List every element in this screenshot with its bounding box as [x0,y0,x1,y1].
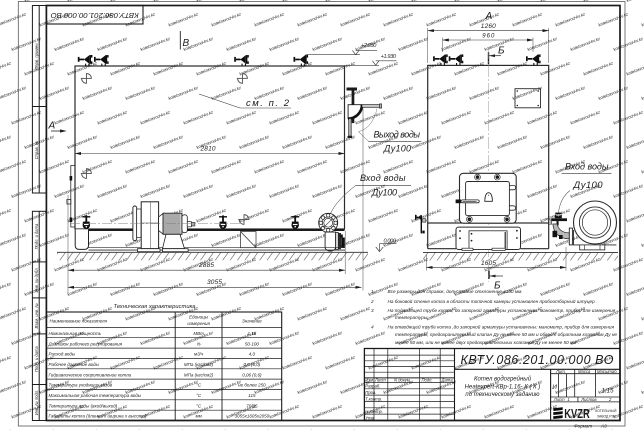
svg-text:2: 2 [608,397,612,402]
svg-text:kotelzavod-kv.kz: kotelzavod-kv.kz [398,109,430,125]
svg-text:температуры, предохранительный: температуры, предохранительный клапан Ду… [395,331,617,337]
svg-text:kotelzavod-kv.kz: kotelzavod-kv.kz [641,85,644,101]
svg-text:kotelzavod-kv.kz: kotelzavod-kv.kz [282,134,314,150]
svg-text:kotelzavod-kv.kz: kotelzavod-kv.kz [540,281,572,297]
svg-text:kotelzavod-kv.kz: kotelzavod-kv.kz [383,158,415,174]
svg-text:kotelzavod-kv.kz: kotelzavod-kv.kz [269,403,301,419]
svg-text:2: 2 [370,299,374,304]
svg-text:kotelzavod-kv.kz: kotelzavod-kv.kz [312,109,344,125]
svg-text:kotelzavod-kv.kz: kotelzavod-kv.kz [54,36,86,52]
svg-text:Подп. и дата: Подп. и дата [34,223,39,249]
svg-text:Техническая характеристика: Техническая характеристика [114,304,196,310]
svg-text:см. п. 2: см. п. 2 [246,98,290,109]
svg-text:Н.контр.: Н.контр. [365,409,383,414]
svg-text:4,0: 4,0 [249,352,256,357]
svg-text:Пров.: Пров. [365,390,376,395]
svg-text:kotelzavod-kv.kz: kotelzavod-kv.kz [226,109,258,125]
svg-text:kotelzavod-kv.kz: kotelzavod-kv.kz [512,11,544,27]
svg-text:kotelzavod-kv.kz: kotelzavod-kv.kz [355,330,387,346]
svg-text:1,16: 1,16 [248,331,257,336]
svg-text:kotelzavod-kv.kz: kotelzavod-kv.kz [153,134,185,150]
svg-text:kotelzavod-kv.kz: kotelzavod-kv.kz [97,36,129,52]
svg-text:kotelzavod-kv.kz: kotelzavod-kv.kz [0,0,13,3]
svg-text:kotelzavod-kv.kz: kotelzavod-kv.kz [0,85,28,101]
svg-text:kotelzavod-kv.kz: kotelzavod-kv.kz [67,281,99,297]
svg-text:kotelzavod-kv.kz: kotelzavod-kv.kz [583,281,615,297]
svg-text:kotelzavod-kv.kz: kotelzavod-kv.kz [110,281,142,297]
svg-text:kotelzavod-kv.kz: kotelzavod-kv.kz [641,305,644,321]
svg-text:Лист: Лист [374,377,386,382]
svg-text:kotelzavod-kv.kz: kotelzavod-kv.kz [613,36,644,52]
svg-text:kotelzavod-kv.kz: kotelzavod-kv.kz [67,134,99,150]
svg-text:2810: 2810 [200,146,216,153]
svg-text:А: А [48,121,56,132]
svg-text:Номинальная мощность: Номинальная мощность [49,331,102,336]
svg-text:Перв. примен.: Перв. примен. [34,42,39,69]
svg-text:kotelzavod-kv.kz: kotelzavod-kv.kz [441,403,473,419]
svg-text:kotelzavod-kv.kz: kotelzavod-kv.kz [54,109,86,125]
svg-text:kotelzavod-kv.kz: kotelzavod-kv.kz [613,183,644,199]
svg-text:kotelzavod-kv.kz: kotelzavod-kv.kz [297,158,329,174]
svg-text:kotelzavod-kv.kz: kotelzavod-kv.kz [626,207,644,223]
svg-text:kotelzavod-kv.kz: kotelzavod-kv.kz [626,354,644,370]
svg-text:kotelzavod-kv.kz: kotelzavod-kv.kz [183,109,215,125]
svg-text:Диапазон рабочего регулировани: Диапазон рабочего регулирования [48,341,123,346]
svg-text:Единицы: Единицы [189,315,209,320]
svg-text:KVZR: KVZR [564,406,590,421]
svg-text:А3: А3 [600,424,607,429]
svg-text:Вход воды: Вход воды [565,162,609,172]
svg-text:kotelzavod-kv.kz: kotelzavod-kv.kz [527,109,559,125]
svg-text:Расход воды: Расход воды [49,352,76,357]
svg-text:kotelzavod-kv.kz: kotelzavod-kv.kz [125,158,157,174]
svg-text:И: И [552,384,557,391]
svg-text:kotelzavod-kv.kz: kotelzavod-kv.kz [383,11,415,27]
svg-text:kotelzavod-kv.kz: kotelzavod-kv.kz [497,134,529,150]
svg-text:4: 4 [371,325,374,330]
svg-text:Наименование показателя: Наименование показателя [50,319,108,324]
svg-text:kotelzavod-kv.kz: kotelzavod-kv.kz [183,183,215,199]
svg-text:kotelzavod-kv.kz: kotelzavod-kv.kz [297,11,329,27]
svg-text:kotelzavod-kv.kz: kotelzavod-kv.kz [0,207,13,223]
svg-text:менее 50 мм, или не менее дву: менее 50 мм, или не менее двух предохран… [395,340,579,345]
svg-text:На отводящей трубе котла ,до з: На отводящей трубе котла ,до запорной ар… [388,324,615,330]
svg-text:+1.930: +1.930 [381,54,397,60]
svg-text:Ду100: Ду100 [371,187,397,197]
svg-text:kotelzavod-kv.kz: kotelzavod-kv.kz [140,36,172,52]
svg-text:960: 960 [482,33,495,39]
svg-text:2885: 2885 [198,262,214,269]
svg-text:kotelzavod-kv.kz: kotelzavod-kv.kz [469,158,501,174]
svg-text:kotelzavod-kv.kz: kotelzavod-kv.kz [325,281,357,297]
svg-text:Разраб.: Разраб. [365,384,380,389]
svg-text:°С: °С [196,383,202,388]
svg-text:kotelzavod-kv.kz: kotelzavod-kv.kz [97,183,129,199]
svg-text:kotelzavod-kv.kz: kotelzavod-kv.kz [312,183,344,199]
svg-text:%: % [197,341,201,346]
svg-text:kotelzavod-kv.kz: kotelzavod-kv.kz [54,183,86,199]
svg-text:1: 1 [371,289,374,294]
svg-text:kotelzavod-kv.kz: kotelzavod-kv.kz [282,207,314,223]
svg-text:kotelzavod-kv.kz: kotelzavod-kv.kz [626,0,644,3]
svg-text:kotelzavod-kv.kz: kotelzavod-kv.kz [325,354,357,370]
svg-text:kotelzavod-kv.kz: kotelzavod-kv.kz [641,232,644,248]
svg-text:kotelzavod-kv.kz: kotelzavod-kv.kz [211,11,243,27]
svg-text:kotelzavod-kv.kz: kotelzavod-kv.kz [555,11,587,27]
svg-text:мм: мм [196,414,202,419]
svg-text:КВТУ.086.201.00.000 ВО: КВТУ.086.201.00.000 ВО [461,353,614,367]
svg-text:Ду100: Ду100 [383,144,411,154]
svg-text:kotelzavod-kv.kz: kotelzavod-kv.kz [426,158,458,174]
svg-text:kotelzavod-kv.kz: kotelzavod-kv.kz [153,281,185,297]
svg-text:Габариты котла (длинна х ширин: Габариты котла (длинна х ширина х высота… [49,414,148,419]
svg-text:kotelzavod-kv.kz: kotelzavod-kv.kz [82,85,114,101]
svg-text:kotelzavod-kv.kz: kotelzavod-kv.kz [0,11,28,27]
svg-text:kotelzavod-kv.kz: kotelzavod-kv.kz [0,354,13,370]
svg-text:Максимальная рабочая температу: Максимальная рабочая температура воды [49,393,142,398]
svg-text:1: 1 [567,397,569,402]
svg-text:kotelzavod-kv.kz: kotelzavod-kv.kz [626,60,644,76]
svg-text:температуры.: температуры. [395,315,429,320]
svg-text:kotelzavod-kv.kz: kotelzavod-kv.kz [239,134,271,150]
svg-text:Утв.: Утв. [365,415,375,420]
svg-text:не более 250: не более 250 [238,383,266,388]
svg-text:измерения: измерения [187,321,210,326]
svg-text:kotelzavod-kv.kz: kotelzavod-kv.kz [11,109,43,125]
svg-text:3055х1605х2050: 3055х1605х2050 [235,414,270,419]
svg-text:МПа (кгс/см2): МПа (кгс/см2) [184,372,214,377]
svg-text:1260: 1260 [481,23,496,30]
svg-text:kotelzavod-kv.kz: kotelzavod-kv.kz [426,85,458,101]
svg-text:1605: 1605 [481,260,496,267]
svg-text:Масштаб: Масштаб [597,369,617,374]
svg-text:kotelzavod-kv.kz: kotelzavod-kv.kz [512,158,544,174]
svg-text:kotelzavod-kv.kz: kotelzavod-kv.kz [269,183,301,199]
svg-text:kotelzavod-kv.kz: kotelzavod-kv.kz [325,60,357,76]
svg-text:kotelzavod-kv.kz: kotelzavod-kv.kz [312,36,344,52]
svg-text:kotelzavod-kv.kz: kotelzavod-kv.kz [140,109,172,125]
svg-text:Подп.: Подп. [422,377,433,382]
svg-text:Справ. №: Справ. № [34,140,39,159]
svg-text:КОТЕЛЬНЫЙ: КОТЕЛЬНЫЙ [595,409,617,413]
svg-text:kotelzavod-kv.kz: kotelzavod-kv.kz [583,134,615,150]
svg-text:kotelzavod-kv.kz: kotelzavod-kv.kz [239,207,271,223]
svg-text:kotelzavod-kv.kz: kotelzavod-kv.kz [613,403,644,419]
svg-text:kotelzavod-kv.kz: kotelzavod-kv.kz [626,281,644,297]
svg-text:kotelzavod-kv.kz: kotelzavod-kv.kz [140,183,172,199]
svg-text:kotelzavod-kv.kz: kotelzavod-kv.kz [168,158,200,174]
svg-text:МПа (кгс/см2): МПа (кгс/см2) [184,362,214,367]
svg-text:kotelzavod-kv.kz: kotelzavod-kv.kz [613,330,644,346]
svg-text:Выход воды: Выход воды [374,130,421,140]
svg-text:Дата: Дата [441,377,454,382]
svg-text:kotelzavod-kv.kz: kotelzavod-kv.kz [282,354,314,370]
svg-text:kotelzavod-kv.kz: kotelzavod-kv.kz [211,158,243,174]
svg-text:kotelzavod-kv.kz: kotelzavod-kv.kz [11,183,43,199]
svg-text:kotelzavod-kv.kz: kotelzavod-kv.kz [67,60,99,76]
svg-text:kotelzavod-kv.kz: kotelzavod-kv.kz [626,134,644,150]
svg-text:kotelzavod-kv.kz: kotelzavod-kv.kz [527,36,559,52]
svg-text:А: А [485,11,493,22]
svg-text:kotelzavod-kv.kz: kotelzavod-kv.kz [527,183,559,199]
svg-text:kotelzavod-kv.kz: kotelzavod-kv.kz [368,60,400,76]
svg-text:Изм.: Изм. [365,377,374,382]
svg-text:kotelzavod-kv.kz: kotelzavod-kv.kz [426,11,458,27]
svg-text:kotelzavod-kv.kz: kotelzavod-kv.kz [97,109,129,125]
svg-text:kotelzavod-kv.kz: kotelzavod-kv.kz [398,183,430,199]
svg-text:kotelzavod-kv.kz: kotelzavod-kv.kz [398,36,430,52]
svg-text:kotelzavod-kv.kz: kotelzavod-kv.kz [110,60,142,76]
svg-text:kotelzavod-kv.kz: kotelzavod-kv.kz [312,330,344,346]
svg-text:Инв. № дубл.: Инв. № дубл. [34,267,39,292]
svg-text:Heatexpert-КВр-1,16- К ( К ): Heatexpert-КВр-1,16- К ( К ) [465,384,541,390]
svg-text:kotelzavod-kv.kz: kotelzavod-kv.kz [254,11,286,27]
svg-text:kotelzavod-kv.kz: kotelzavod-kv.kz [168,379,200,395]
svg-text:kotelzavod-kv.kz: kotelzavod-kv.kz [540,60,572,76]
svg-text:kotelzavod-kv.kz: kotelzavod-kv.kz [168,11,200,27]
svg-text:kotelzavod-kv.kz: kotelzavod-kv.kz [39,158,71,174]
svg-text:3055: 3055 [207,279,222,286]
svg-text:kotelzavod-kv.kz: kotelzavod-kv.kz [269,36,301,52]
svg-text:kotelzavod-kv.kz: kotelzavod-kv.kz [368,354,400,370]
svg-text:Значение: Значение [242,319,262,324]
svg-text:kotelzavod-kv.kz: kotelzavod-kv.kz [168,85,200,101]
svg-text:kotelzavod-kv.kz: kotelzavod-kv.kz [0,158,28,174]
svg-text:kotelzavod-kv.kz: kotelzavod-kv.kz [340,11,372,27]
svg-text:На подводящей трубе котла, д: На подводящей трубе котла, до запорной а… [388,307,616,313]
svg-text:kotelzavod-kv.kz: kotelzavod-kv.kz [0,232,28,248]
svg-text:kotelzavod-kv.kz: kotelzavod-kv.kz [441,36,473,52]
svg-text:kotelzavod-kv.kz: kotelzavod-kv.kz [312,403,344,419]
svg-text:kotelzavod-kv.kz: kotelzavod-kv.kz [269,109,301,125]
svg-text:kotelzavod-kv.kz: kotelzavod-kv.kz [297,85,329,101]
svg-text:kotelzavod-kv.kz: kotelzavod-kv.kz [383,85,415,101]
svg-text:kotelzavod-kv.kz: kotelzavod-kv.kz [297,379,329,395]
svg-text:kotelzavod-kv.kz: kotelzavod-kv.kz [11,330,43,346]
svg-text:kotelzavod-kv.kz: kotelzavod-kv.kz [497,60,529,76]
svg-text:kotelzavod-kv.kz: kotelzavod-kv.kz [39,232,71,248]
svg-text:Температура воды (вход/выход): Температура воды (вход/выход) [49,403,118,408]
svg-text:kotelzavod-kv.kz: kotelzavod-kv.kz [641,158,644,174]
svg-text:kotelzavod-kv.kz: kotelzavod-kv.kz [613,109,644,125]
svg-text:°С: °С [196,393,202,398]
svg-text:Все размеры для справок, допус: Все размеры для справок, допустимое откл… [388,289,523,294]
svg-text:КВТУ.086.201.00.000 ВО: КВТУ.086.201.00.000 ВО [51,11,139,20]
svg-text:kotelzavod-kv.kz: kotelzavod-kv.kz [282,281,314,297]
svg-text:Лит.: Лит. [555,369,566,374]
svg-text:kotelzavod-kv.kz: kotelzavod-kv.kz [340,305,372,321]
svg-text:kotelzavod-kv.kz: kotelzavod-kv.kz [454,134,486,150]
svg-text:Т.контр.: Т.контр. [365,396,382,401]
svg-text:kotelzavod-kv.kz: kotelzavod-kv.kz [0,379,28,395]
svg-text:kotelzavod-kv.kz: kotelzavod-kv.kz [0,134,13,150]
svg-text:kotelzavod-kv.kz: kotelzavod-kv.kz [555,379,587,395]
svg-text:Ду100: Ду100 [573,180,604,191]
svg-text:Подп. и дата: Подп. и дата [34,346,39,372]
svg-text:kotelzavod-kv.kz: kotelzavod-kv.kz [411,354,443,370]
svg-text:kotelzavod-kv.kz: kotelzavod-kv.kz [411,60,443,76]
svg-text:Б: Б [498,46,505,57]
svg-text:Вход воды: Вход воды [360,173,406,183]
svg-text:1:15: 1:15 [602,388,615,395]
svg-text:kotelzavod-kv.kz: kotelzavod-kv.kz [398,403,430,419]
svg-text:kotelzavod-kv.kz: kotelzavod-kv.kz [641,379,644,395]
svg-text:kotelzavod-kv.kz: kotelzavod-kv.kz [297,232,329,248]
svg-text:115: 115 [248,393,256,398]
svg-text:Взам. инв. №: Взам. инв. № [34,303,39,329]
svg-text:kotelzavod-kv.kz: kotelzavod-kv.kz [211,232,243,248]
svg-text:kotelzavod-kv.kz: kotelzavod-kv.kz [555,85,587,101]
svg-text:kotelzavod-kv.kz: kotelzavod-kv.kz [153,354,185,370]
svg-text:по техническому заданию: по техническому заданию [465,392,540,398]
svg-text:kotelzavod-kv.kz: kotelzavod-kv.kz [540,134,572,150]
svg-text:kotelzavod-kv.kz: kotelzavod-kv.kz [39,85,71,101]
svg-text:kotelzavod-kv.kz: kotelzavod-kv.kz [512,85,544,101]
svg-text:50-100: 50-100 [245,341,260,346]
svg-text:kotelzavod-kv.kz: kotelzavod-kv.kz [153,60,185,76]
svg-text:kotelzavod-kv.kz: kotelzavod-kv.kz [239,281,271,297]
svg-text:kotelzavod-kv.kz: kotelzavod-kv.kz [570,109,602,125]
svg-text:kotelzavod-kv.kz: kotelzavod-kv.kz [254,158,286,174]
svg-text:Рабочее давление воды: Рабочее давление воды [49,362,100,367]
svg-text:Формат: Формат [574,424,592,429]
svg-text:Масса: Масса [578,369,591,374]
svg-text:N докум.: N докум. [394,377,411,382]
svg-text:kotelzavod-kv.kz: kotelzavod-kv.kz [426,232,458,248]
svg-text:0,06 (0,6): 0,06 (0,6) [242,372,262,377]
svg-text:kotelzavod-kv.kz: kotelzavod-kv.kz [570,36,602,52]
svg-text:+2.050: +2.050 [361,43,377,49]
svg-text:Лист: Лист [553,397,565,402]
svg-text:kotelzavod-kv.kz: kotelzavod-kv.kz [297,305,329,321]
svg-text:kotelzavod-kv.kz: kotelzavod-kv.kz [0,305,28,321]
svg-text:Инв. № подл.: Инв. № подл. [34,390,39,415]
svg-text:kotelzavod-kv.kz: kotelzavod-kv.kz [583,60,615,76]
svg-text:kotelzavod-kv.kz: kotelzavod-kv.kz [282,60,314,76]
svg-text:В: В [183,38,190,49]
svg-text:kotelzavod-kv.kz: kotelzavod-kv.kz [484,403,516,419]
svg-text:kotelzavod-kv.kz: kotelzavod-kv.kz [454,60,486,76]
svg-text:kotelzavod-kv.kz: kotelzavod-kv.kz [226,183,258,199]
svg-text:kotelzavod-kv.kz: kotelzavod-kv.kz [125,85,157,101]
svg-text:kotelzavod-kv.kz: kotelzavod-kv.kz [211,305,243,321]
svg-text:kotelzavod-kv.kz: kotelzavod-kv.kz [441,109,473,125]
svg-text:kotelzavod-kv.kz: kotelzavod-kv.kz [196,60,228,76]
svg-text:kotelzavod-kv.kz: kotelzavod-kv.kz [110,354,142,370]
svg-text:kotelzavod-kv.kz: kotelzavod-kv.kz [641,11,644,27]
svg-text:kotelzavod-kv.kz: kotelzavod-kv.kz [0,281,13,297]
svg-text:kotelzavod-kv.kz: kotelzavod-kv.kz [211,85,243,101]
svg-text:kotelzavod-kv.kz: kotelzavod-kv.kz [469,85,501,101]
svg-text:kotelzavod-kv.kz: kotelzavod-kv.kz [254,232,286,248]
svg-text:Котел водогрейный: Котел водогрейный [474,376,532,383]
svg-text:kotelzavod-kv.kz: kotelzavod-kv.kz [110,134,142,150]
svg-text:3: 3 [371,308,374,313]
svg-text:kotelzavod-kv.kz: kotelzavod-kv.kz [0,60,13,76]
svg-text:Гидравлическое сопротивление к: Гидравлическое сопротивление котла [49,372,132,377]
svg-text:°С: °С [196,403,202,408]
svg-text:70/95: 70/95 [246,403,258,408]
svg-text:0,6 (6,0): 0,6 (6,0) [244,362,261,367]
svg-text:м3/ч: м3/ч [194,352,204,357]
svg-text:0.000: 0.000 [384,238,397,244]
svg-text:Листов: Листов [580,397,597,402]
svg-text:ЗАВОД РЗР: ЗАВОД РЗР [597,414,616,418]
svg-text:Температура уходящих газов: Температура уходящих газов [49,383,113,388]
svg-text:МВт: МВт [193,331,204,336]
svg-text:kotelzavod-kv.kz: kotelzavod-kv.kz [368,207,400,223]
svg-text:kotelzavod-kv.kz: kotelzavod-kv.kz [226,36,258,52]
svg-text:На боковой стенке котла в обла: На боковой стенке котла в области топочн… [388,298,596,304]
